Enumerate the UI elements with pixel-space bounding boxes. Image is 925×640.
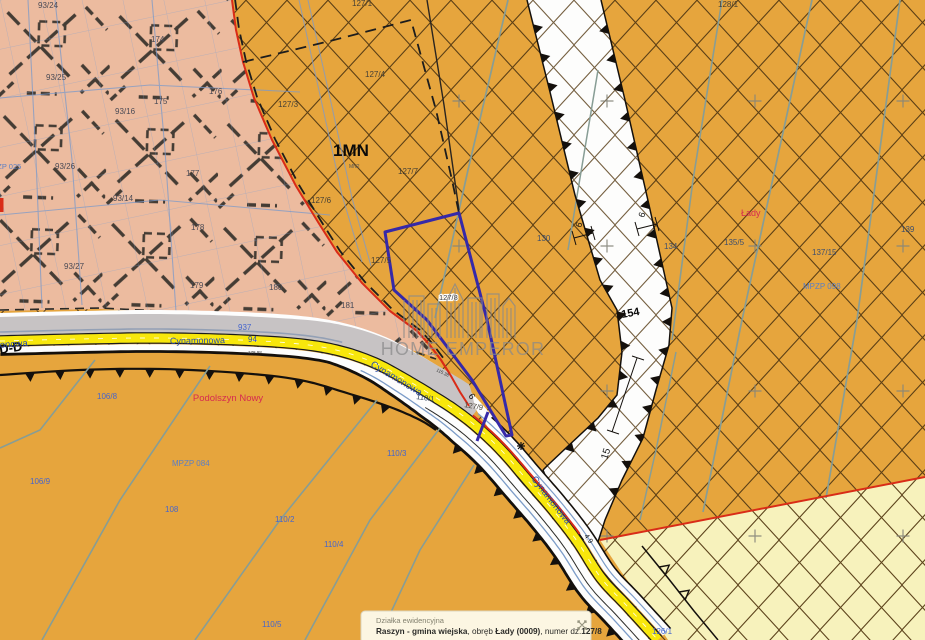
svg-text:HOME EMPEROR: HOME EMPEROR [381,339,545,359]
svg-text:135/5: 135/5 [724,238,745,247]
svg-text:178: 178 [191,223,205,232]
svg-text:128/1: 128/1 [718,0,739,9]
svg-text:130: 130 [537,234,551,243]
svg-text:Raszyn - gmina wiejska, obręb: Raszyn - gmina wiejska, obręb Łady (0009… [376,627,602,636]
svg-text:180: 180 [269,283,283,292]
svg-text:93/25: 93/25 [46,73,67,82]
svg-text:127/3: 127/3 [278,100,299,109]
svg-text:177: 177 [186,169,200,178]
svg-text:Łady: Łady [741,208,761,218]
svg-text:110/4: 110/4 [324,540,344,549]
svg-text:110/3: 110/3 [387,449,407,458]
svg-text:127/4: 127/4 [365,70,386,79]
svg-text:139: 139 [901,225,915,234]
svg-text:93/27: 93/27 [64,262,85,271]
svg-text:106/9: 106/9 [30,477,51,486]
svg-text:108: 108 [165,505,179,514]
svg-text:175: 175 [154,97,168,106]
svg-text:94: 94 [248,335,257,344]
svg-text:110/5: 110/5 [262,620,282,629]
svg-text:176: 176 [209,87,223,96]
svg-text:93/24: 93/24 [38,1,59,10]
svg-text:MPZP 025: MPZP 025 [0,162,21,171]
svg-text:181: 181 [341,301,355,310]
svg-text:MN2: MN2 [349,164,360,170]
svg-text:127/5: 127/5 [371,256,392,265]
svg-text:110/2: 110/2 [275,515,295,524]
svg-text:174: 174 [151,35,165,44]
svg-text:Cynamonowa: Cynamonowa [170,335,225,346]
svg-text:137/15: 137/15 [812,248,837,257]
svg-text:127/1: 127/1 [352,0,373,8]
svg-text:Działka ewidencyjna: Działka ewidencyjna [376,616,445,625]
svg-text:1MN: 1MN [333,141,369,160]
svg-text:93/16: 93/16 [115,107,136,116]
svg-text:937: 937 [238,323,252,332]
svg-text:179: 179 [190,281,204,290]
svg-text:Podolszyn Nowy: Podolszyn Nowy [193,393,263,404]
svg-text:MPZP 098: MPZP 098 [803,282,841,291]
svg-text:93/26: 93/26 [55,162,76,171]
svg-text:127/7: 127/7 [398,167,419,176]
svg-text:127/6: 127/6 [311,196,332,205]
svg-text:178.98: 178.98 [248,350,262,355]
svg-text:93/14: 93/14 [113,194,134,203]
svg-text:134: 134 [664,242,678,251]
svg-text:MPZP 084: MPZP 084 [172,459,210,468]
svg-text:106/8: 106/8 [97,392,118,401]
svg-text:onowa: onowa [0,338,29,351]
svg-text:126/1: 126/1 [652,627,673,636]
